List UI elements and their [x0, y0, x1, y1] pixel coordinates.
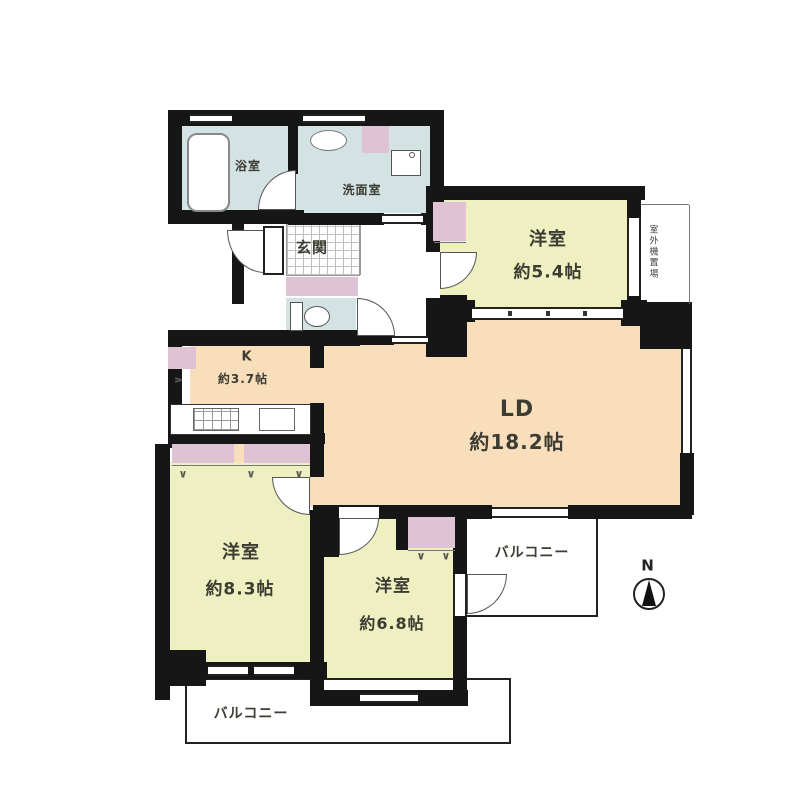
entrance-door-panel	[263, 226, 284, 275]
washroom-label: 洗面室	[342, 184, 381, 196]
kitchen-size: 約3.7帖	[218, 373, 268, 385]
entrance-label: 玄関	[296, 241, 328, 256]
closet-front-line	[172, 465, 310, 466]
door-hall-ld	[392, 336, 428, 344]
window	[190, 114, 232, 123]
bifold-door-mark: ∨	[442, 551, 451, 562]
closet-front-line	[434, 242, 466, 243]
wall	[453, 514, 467, 574]
window-mullion	[508, 311, 512, 316]
wall	[158, 650, 206, 686]
wall	[568, 505, 692, 519]
washroom-sink	[310, 130, 347, 151]
outdoor-area-line	[641, 204, 689, 205]
window-mullion	[583, 311, 587, 316]
wall	[640, 302, 692, 349]
window	[303, 114, 365, 123]
kitchen-stove	[259, 408, 295, 431]
balcony-side-label: バルコニー	[495, 546, 570, 560]
western-room-2-size: 約8.3帖	[205, 582, 274, 599]
wall	[426, 295, 467, 357]
window	[360, 693, 418, 703]
western-room-1-size: 約5.4帖	[513, 265, 582, 282]
door-room3-balcony	[453, 574, 467, 616]
balcony-bottom-label: バルコニー	[214, 707, 289, 721]
window	[254, 665, 294, 676]
room1-closet	[433, 202, 466, 241]
western-room-2-label: 洋室	[222, 544, 260, 562]
window-mullion	[546, 311, 550, 316]
wall	[288, 213, 384, 225]
wall	[310, 346, 324, 368]
window-ld-east	[681, 349, 692, 453]
western-room-1-label: 洋室	[529, 231, 567, 249]
wall	[310, 444, 324, 477]
window	[208, 665, 248, 676]
window-ld-balcony	[492, 507, 568, 518]
living-dining-label: LD	[500, 399, 534, 421]
wall	[396, 505, 408, 550]
bifold-door-mark: ∨	[247, 469, 256, 480]
window	[627, 218, 641, 296]
bifold-door-mark: ∨	[179, 469, 188, 480]
bath-label: 浴室	[235, 160, 261, 172]
bifold-door-mark: ∨	[173, 376, 184, 385]
door-gap	[426, 252, 440, 298]
floor-plan: ∨ ∨ ∨ ∨ ∨ ∨ 浴室 洗面室 玄関 K 約3.7帖 洋室 約5.4帖 室…	[0, 0, 800, 800]
toilet-tank	[290, 302, 303, 331]
bifold-door-mark: ∨	[417, 551, 426, 562]
washer-faucet-icon	[409, 152, 415, 158]
entrance-step-line	[360, 225, 361, 275]
shoe-closet	[286, 277, 358, 296]
wall	[627, 200, 641, 218]
toilet-bowl	[304, 306, 330, 327]
room2-closet-b	[244, 444, 310, 463]
outdoor-area-line	[689, 205, 690, 304]
wall	[313, 505, 339, 557]
wall	[621, 300, 647, 326]
compass-needle-icon	[642, 580, 656, 606]
outdoor-unit-label: 室外機置場	[648, 225, 657, 280]
wall	[168, 330, 360, 346]
kitchen-sink	[193, 408, 239, 431]
living-dining-size: 約18.2帖	[469, 432, 564, 452]
western-room-3-label: 洋室	[375, 579, 411, 596]
bifold-door-mark: ∨	[295, 469, 304, 480]
western-room-3-size: 約6.8帖	[359, 616, 424, 632]
compass-north-label: N	[641, 559, 655, 574]
bathtub	[187, 133, 230, 212]
kitchen-side-closet	[168, 347, 196, 369]
room3-closet	[408, 517, 455, 548]
wall	[168, 110, 182, 224]
sliding-door-washroom	[382, 214, 423, 224]
washing-machine-space	[391, 150, 421, 176]
washroom-closet	[362, 126, 389, 153]
room2-closet-a	[172, 444, 234, 463]
door-gap	[339, 507, 379, 518]
wall	[426, 186, 645, 200]
wall	[288, 126, 298, 174]
kitchen-label: K	[241, 351, 252, 364]
